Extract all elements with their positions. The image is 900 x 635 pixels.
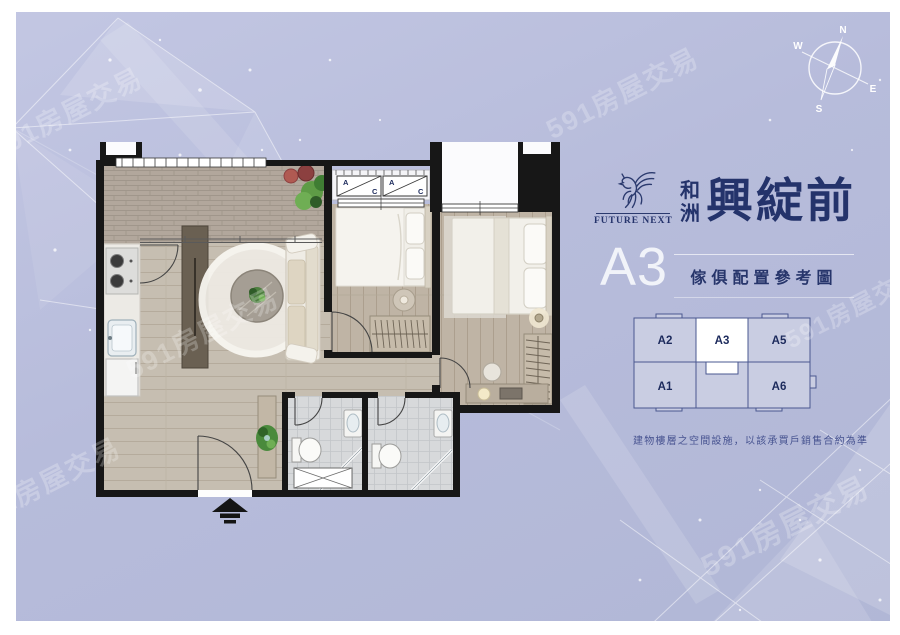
desk-lamp: [478, 388, 490, 400]
entrance-threshold: [198, 490, 252, 497]
balcony-railing: [116, 158, 266, 167]
toilet1-bowl: [299, 438, 321, 462]
ac-unit-2-label-a: A: [389, 178, 395, 187]
compass-south-label: S: [816, 104, 823, 115]
compass-north-label: N: [839, 25, 846, 36]
keyplan-label-a6: A6: [772, 381, 787, 393]
bedroom1-closet: [370, 316, 430, 352]
ac-unit-1-label-a: A: [343, 178, 349, 187]
developer-name: 和 洲: [680, 166, 700, 240]
logo-divider: [596, 213, 670, 214]
keyplan-label-a1: A1: [658, 381, 673, 393]
unit-code: A3: [600, 236, 668, 298]
stool: [483, 363, 501, 381]
pegasus-icon: [600, 166, 666, 212]
lavender-canvas: A C A C: [0, 0, 900, 635]
unit-header: A3 傢俱配置參考圖: [600, 236, 850, 302]
light-well: [440, 142, 520, 206]
keyplan-label-a5: A5: [772, 335, 787, 347]
shoe-cabinet: [294, 468, 352, 488]
brand-block: FUTURE NEXT 和 洲 興綻前: [594, 166, 846, 240]
disclaimer-text: 建物樓層之空間設施，以該承買戶銷售合約為準: [633, 432, 868, 447]
caption-box: 傢俱配置參考圖: [674, 254, 854, 298]
keyplan-label-a2: A2: [658, 335, 673, 347]
floorplan-advert: A C A C: [0, 0, 900, 635]
sofa: [285, 233, 320, 364]
keyplan-label-a3: A3: [715, 335, 730, 347]
logo-title: FUTURE NEXT: [594, 216, 672, 226]
stove: [106, 248, 138, 294]
entrance-arrow-icon: [212, 498, 248, 524]
developer-char-2: 洲: [680, 203, 700, 226]
floorplan: A C A C: [96, 142, 560, 524]
ac-ledge: A C A C: [332, 170, 430, 200]
kitchen: [104, 244, 140, 396]
ac-unit-2-label-c: C: [418, 187, 424, 196]
logo-box: FUTURE NEXT: [594, 166, 672, 240]
plan-caption: 傢俱配置參考圖: [690, 270, 837, 287]
compass-west-label: W: [793, 41, 803, 52]
developer-char-1: 和: [680, 180, 700, 203]
building-keyplan: A2 A3 A5 A1 A6: [626, 306, 821, 418]
project-name: 興綻前: [706, 166, 856, 240]
ac-unit-1-label-c: C: [372, 187, 378, 196]
fridge: [106, 359, 138, 396]
compass-east-label: E: [870, 84, 877, 95]
toilet2-bowl: [379, 444, 401, 468]
compass-icon: N W E S: [793, 25, 876, 115]
